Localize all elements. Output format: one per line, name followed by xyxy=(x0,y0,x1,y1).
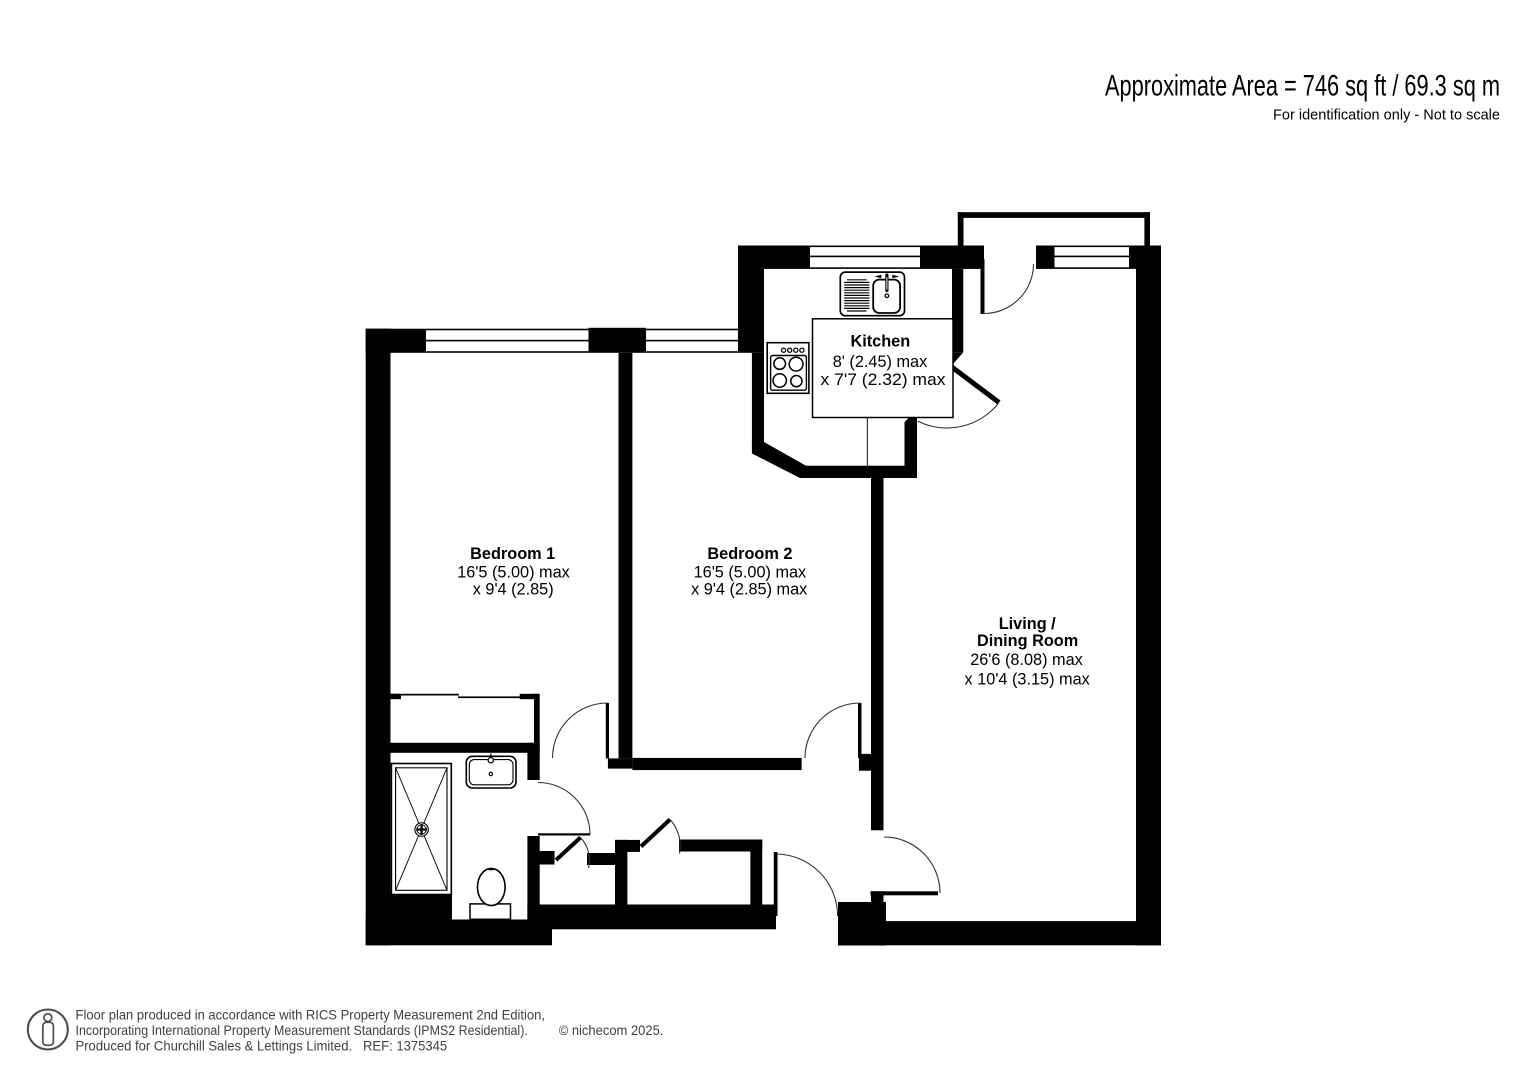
svg-text:For identification only - Not: For identification only - Not to scale xyxy=(1273,107,1500,124)
svg-text:Living /: Living / xyxy=(999,615,1056,633)
svg-text:Bedroom 2: Bedroom 2 xyxy=(707,545,792,563)
svg-text:26'6 (8.08) max: 26'6 (8.08) max xyxy=(970,651,1083,669)
svg-text:x 10'4 (3.15) max: x 10'4 (3.15) max xyxy=(965,670,1090,688)
svg-text:Incorporating International Pr: Incorporating International Property Mea… xyxy=(76,1022,528,1038)
svg-text:x 9'4 (2.85): x 9'4 (2.85) xyxy=(473,580,554,598)
svg-text:Approximate Area = 746 sq ft /: Approximate Area = 746 sq ft / 69.3 sq m xyxy=(1105,70,1500,103)
svg-text:x 9'4 (2.85) max: x 9'4 (2.85) max xyxy=(691,580,807,598)
svg-text:16'5 (5.00) max: 16'5 (5.00) max xyxy=(694,563,807,581)
svg-text:Floor plan produced in accorda: Floor plan produced in accordance with R… xyxy=(76,1006,546,1022)
svg-text:Produced for Churchill Sales &: Produced for Churchill Sales & Lettings … xyxy=(76,1037,448,1053)
svg-text:8' (2.45) max: 8' (2.45) max xyxy=(833,353,928,371)
svg-text:Kitchen: Kitchen xyxy=(850,332,910,350)
svg-text:© nichecom 2025.: © nichecom 2025. xyxy=(559,1022,664,1038)
svg-text:Bedroom 1: Bedroom 1 xyxy=(470,545,555,563)
svg-text:Dining Room: Dining Room xyxy=(977,632,1078,650)
svg-text:16'5 (5.00) max: 16'5 (5.00) max xyxy=(457,563,570,581)
svg-text:x 7'7 (2.32) max: x 7'7 (2.32) max xyxy=(821,371,946,389)
